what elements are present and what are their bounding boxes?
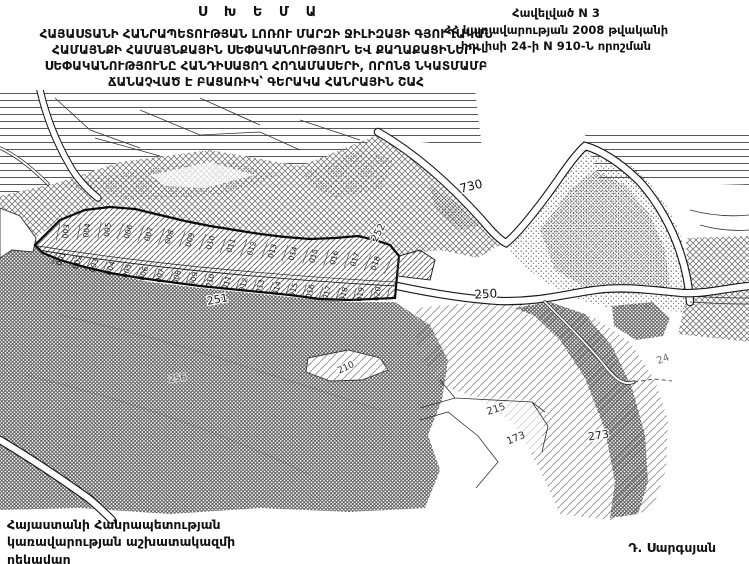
title-line: ՍԵՓԱԿԱՆՈՒԹՅՈՒՆԸ ՀԱՆԴԻՍԱՑՈՂ ՀՈՂԱՄԱՍԵՐԻ, Ո…: [5, 58, 527, 74]
map-label-250: 250: [474, 286, 498, 301]
title-line: ՃԱՆԱՉՎԱԾ Է ԲԱՑԱՌԻԿ՝ ԳԵՐԱԿԱ ՀԱՆՐԱՅԻՆ ՇԱՀ: [5, 74, 527, 90]
title-line: ՀԱՅԱՍՏԱՆԻ ՀԱՆՐԱՊԵՏՈՒԹՅԱՆ ԼՈՌՈՒ ՄԱՐԶԻ ՋԻԼ…: [5, 26, 527, 42]
office-line: Հայաստանի Հանրապետության: [7, 516, 235, 533]
office-line: ղեկավար: [7, 551, 235, 564]
signatory-name: Դ. Սարգսյան: [430, 540, 716, 555]
appendix-line: Հավելված N 3: [425, 5, 687, 22]
title-line: ՀԱՄԱՅՆՔԻ ՀԱՄԱՅՆՔԱՅԻՆ ՍԵՓԱԿԱՆՈՒԹՅՈՒՆ ԵՎ Ք…: [5, 42, 527, 58]
signatory-office: Հայաստանի Հանրապետության կառավարության ա…: [7, 516, 235, 564]
scanned-decree-scheme-page: Ս Խ Ե Մ Ա Հավելված N 3 ՀՀ կառավարության …: [0, 0, 749, 564]
office-line: կառավարության աշխատակազմի: [7, 533, 235, 550]
document-title: ՀԱՅԱՍՏԱՆԻ ՀԱՆՐԱՊԵՏՈՒԹՅԱՆ ԼՈՌՈՒ ՄԱՐԶԻ ՋԻԼ…: [5, 26, 527, 90]
map-label-24: 24: [655, 352, 671, 367]
contour-lines-right: [690, 210, 749, 230]
corridor-end-wedge: [397, 250, 435, 280]
terrain-layer: [0, 90, 749, 520]
cadastral-map: 0030040050060070080090100110120130140150…: [0, 90, 749, 526]
